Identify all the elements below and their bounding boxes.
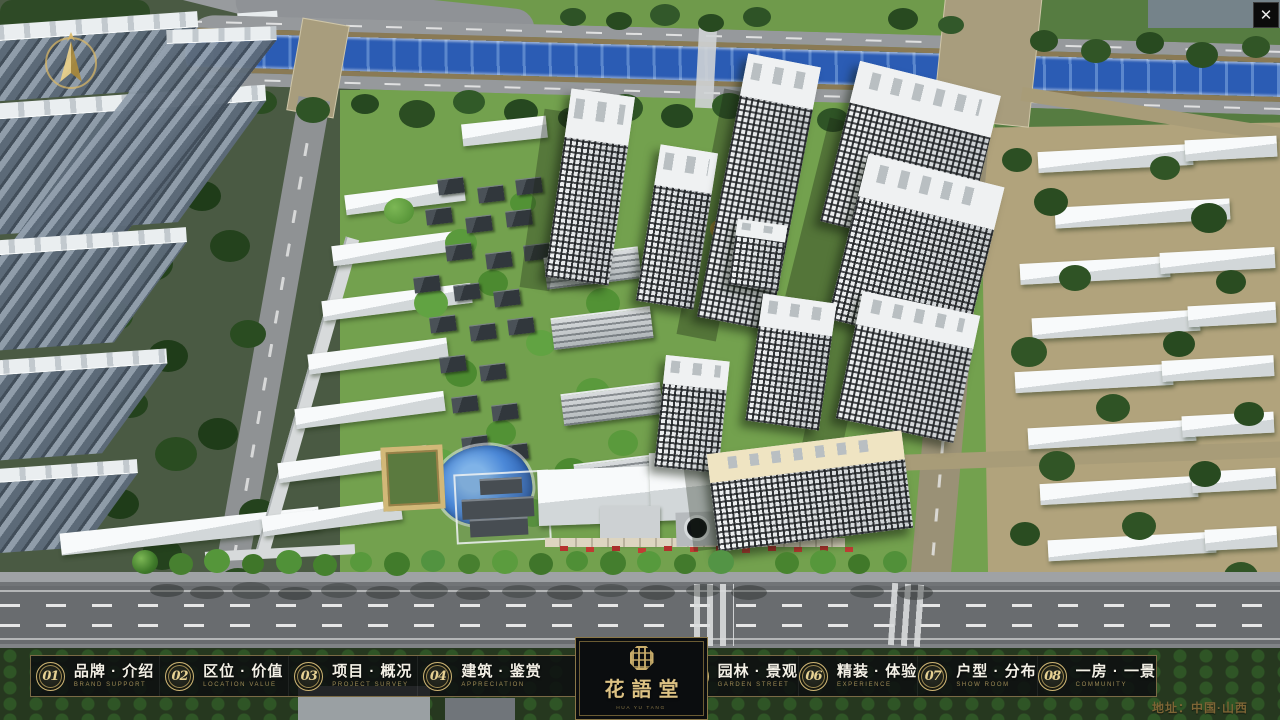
gold-pavilion	[380, 444, 445, 511]
masterplan-render[interactable]	[0, 0, 1280, 720]
villa	[425, 206, 453, 225]
existing-highrise	[0, 227, 194, 353]
menu-sublabel: BRAND SUPPORT	[74, 682, 154, 688]
villa	[477, 184, 505, 203]
menu-number: 07	[925, 669, 941, 684]
menu-item-project-overview[interactable]: 03 项目 · 概况PROJECT SURVEY	[289, 656, 418, 696]
villa	[429, 314, 457, 333]
villa	[451, 394, 479, 413]
lane-line	[0, 590, 1280, 592]
menu-number: 02	[172, 669, 188, 684]
villa	[445, 242, 473, 261]
villa	[479, 362, 507, 381]
road-tree-shadows	[150, 584, 184, 597]
menu-label: 建筑 · 鉴赏	[461, 664, 541, 679]
tree-cluster	[1002, 148, 1032, 172]
chinese-roof	[470, 516, 529, 537]
menu-item-interior-experience[interactable]: 06 精装 · 体验EXPERIENCE	[799, 656, 918, 696]
lane-dashes	[0, 604, 1280, 607]
menu-number-badge: 08	[1038, 662, 1067, 691]
villa	[469, 322, 497, 341]
close-button[interactable]: ✕	[1253, 2, 1279, 28]
existing-highrise	[166, 26, 283, 244]
nav-group-right: 05 园林 · 景观GARDEN STREET 06 精装 · 体验EXPERI…	[680, 656, 1156, 696]
villa	[465, 214, 493, 233]
menu-sublabel: GARDEN STREET	[718, 682, 798, 688]
menu-label: 项目 · 概况	[332, 664, 412, 679]
seal-emblem-icon	[630, 646, 654, 670]
villa	[507, 316, 535, 335]
villa	[413, 274, 441, 293]
menu-number: 08	[1044, 669, 1060, 684]
menu-item-floorplan-distribution[interactable]: 07 户型 · 分布SHOW ROOM	[918, 656, 1037, 696]
foreground-building	[445, 698, 515, 720]
menu-item-architecture-appreciation[interactable]: 04 建筑 · 鉴赏APPRECIATION	[418, 656, 546, 696]
menu-label: 区位 · 价值	[203, 664, 283, 679]
parked-cars	[560, 546, 568, 551]
menu-number: 01	[42, 669, 58, 684]
nav-group-left: 01 品牌 · 介绍BRAND SUPPORT 02 区位 · 价值LOCATI…	[31, 656, 547, 696]
villa	[491, 402, 519, 421]
villa	[453, 282, 481, 301]
presentation-window: ✕ 01 品牌 · 介绍BRAND SUPPORT 02 区位 · 价值LOCA…	[0, 0, 1280, 720]
menu-sublabel: SHOW ROOM	[956, 682, 1036, 688]
menu-number: 03	[301, 669, 317, 684]
menu-number-badge: 01	[36, 662, 65, 691]
menu-sublabel: APPRECIATION	[461, 682, 541, 688]
street-trees	[132, 550, 158, 574]
menu-item-brand-intro[interactable]: 01 品牌 · 介绍BRAND SUPPORT	[31, 656, 160, 696]
project-logo-panel[interactable]: 花語堂 HUA YU TANG	[575, 637, 708, 720]
villa	[437, 176, 465, 195]
close-icon: ✕	[1260, 7, 1273, 24]
existing-highrise	[0, 348, 173, 461]
park-trees	[1030, 30, 1058, 52]
menu-number: 06	[805, 669, 821, 684]
menu-number-badge: 03	[294, 662, 323, 691]
chinese-roof	[480, 477, 523, 495]
neighbor-row	[1192, 468, 1277, 493]
residential-tower	[729, 219, 788, 291]
lane-dashes	[0, 624, 1280, 627]
menu-label: 园林 · 景观	[718, 664, 798, 679]
menu-sublabel: EXPERIENCE	[837, 682, 917, 688]
villa	[485, 250, 513, 269]
project-title-caption: HUA YU TANG	[617, 706, 667, 711]
menu-label: 一房 · 一景	[1076, 664, 1156, 679]
villa	[439, 354, 467, 373]
menu-sublabel: COMMUNITY	[1076, 682, 1156, 688]
menu-number: 04	[430, 669, 446, 684]
menu-number-badge: 04	[423, 662, 452, 691]
compass-north-icon	[38, 28, 104, 94]
menu-label: 品牌 · 介绍	[74, 664, 154, 679]
menu-label: 精装 · 体验	[837, 664, 917, 679]
menu-number-badge: 06	[799, 662, 828, 691]
garden-trees	[384, 198, 414, 224]
villa	[493, 288, 521, 307]
menu-item-location-value[interactable]: 02 区位 · 价值LOCATION VALUE	[160, 656, 289, 696]
crosswalk	[888, 583, 926, 647]
menu-label: 户型 · 分布	[956, 664, 1036, 679]
menu-item-one-room-one-view[interactable]: 08 一房 · 一景COMMUNITY	[1038, 656, 1156, 696]
menu-number-badge: 07	[918, 662, 947, 691]
neighbor-row	[1204, 526, 1277, 551]
menu-sublabel: LOCATION VALUE	[203, 682, 283, 688]
address-text: 地址：中国·山西	[1152, 699, 1248, 716]
project-title: 花語堂	[605, 673, 686, 702]
menu-sublabel: PROJECT SURVEY	[332, 682, 412, 688]
menu-number-badge: 02	[165, 662, 194, 691]
riverbank-trees	[560, 8, 586, 26]
